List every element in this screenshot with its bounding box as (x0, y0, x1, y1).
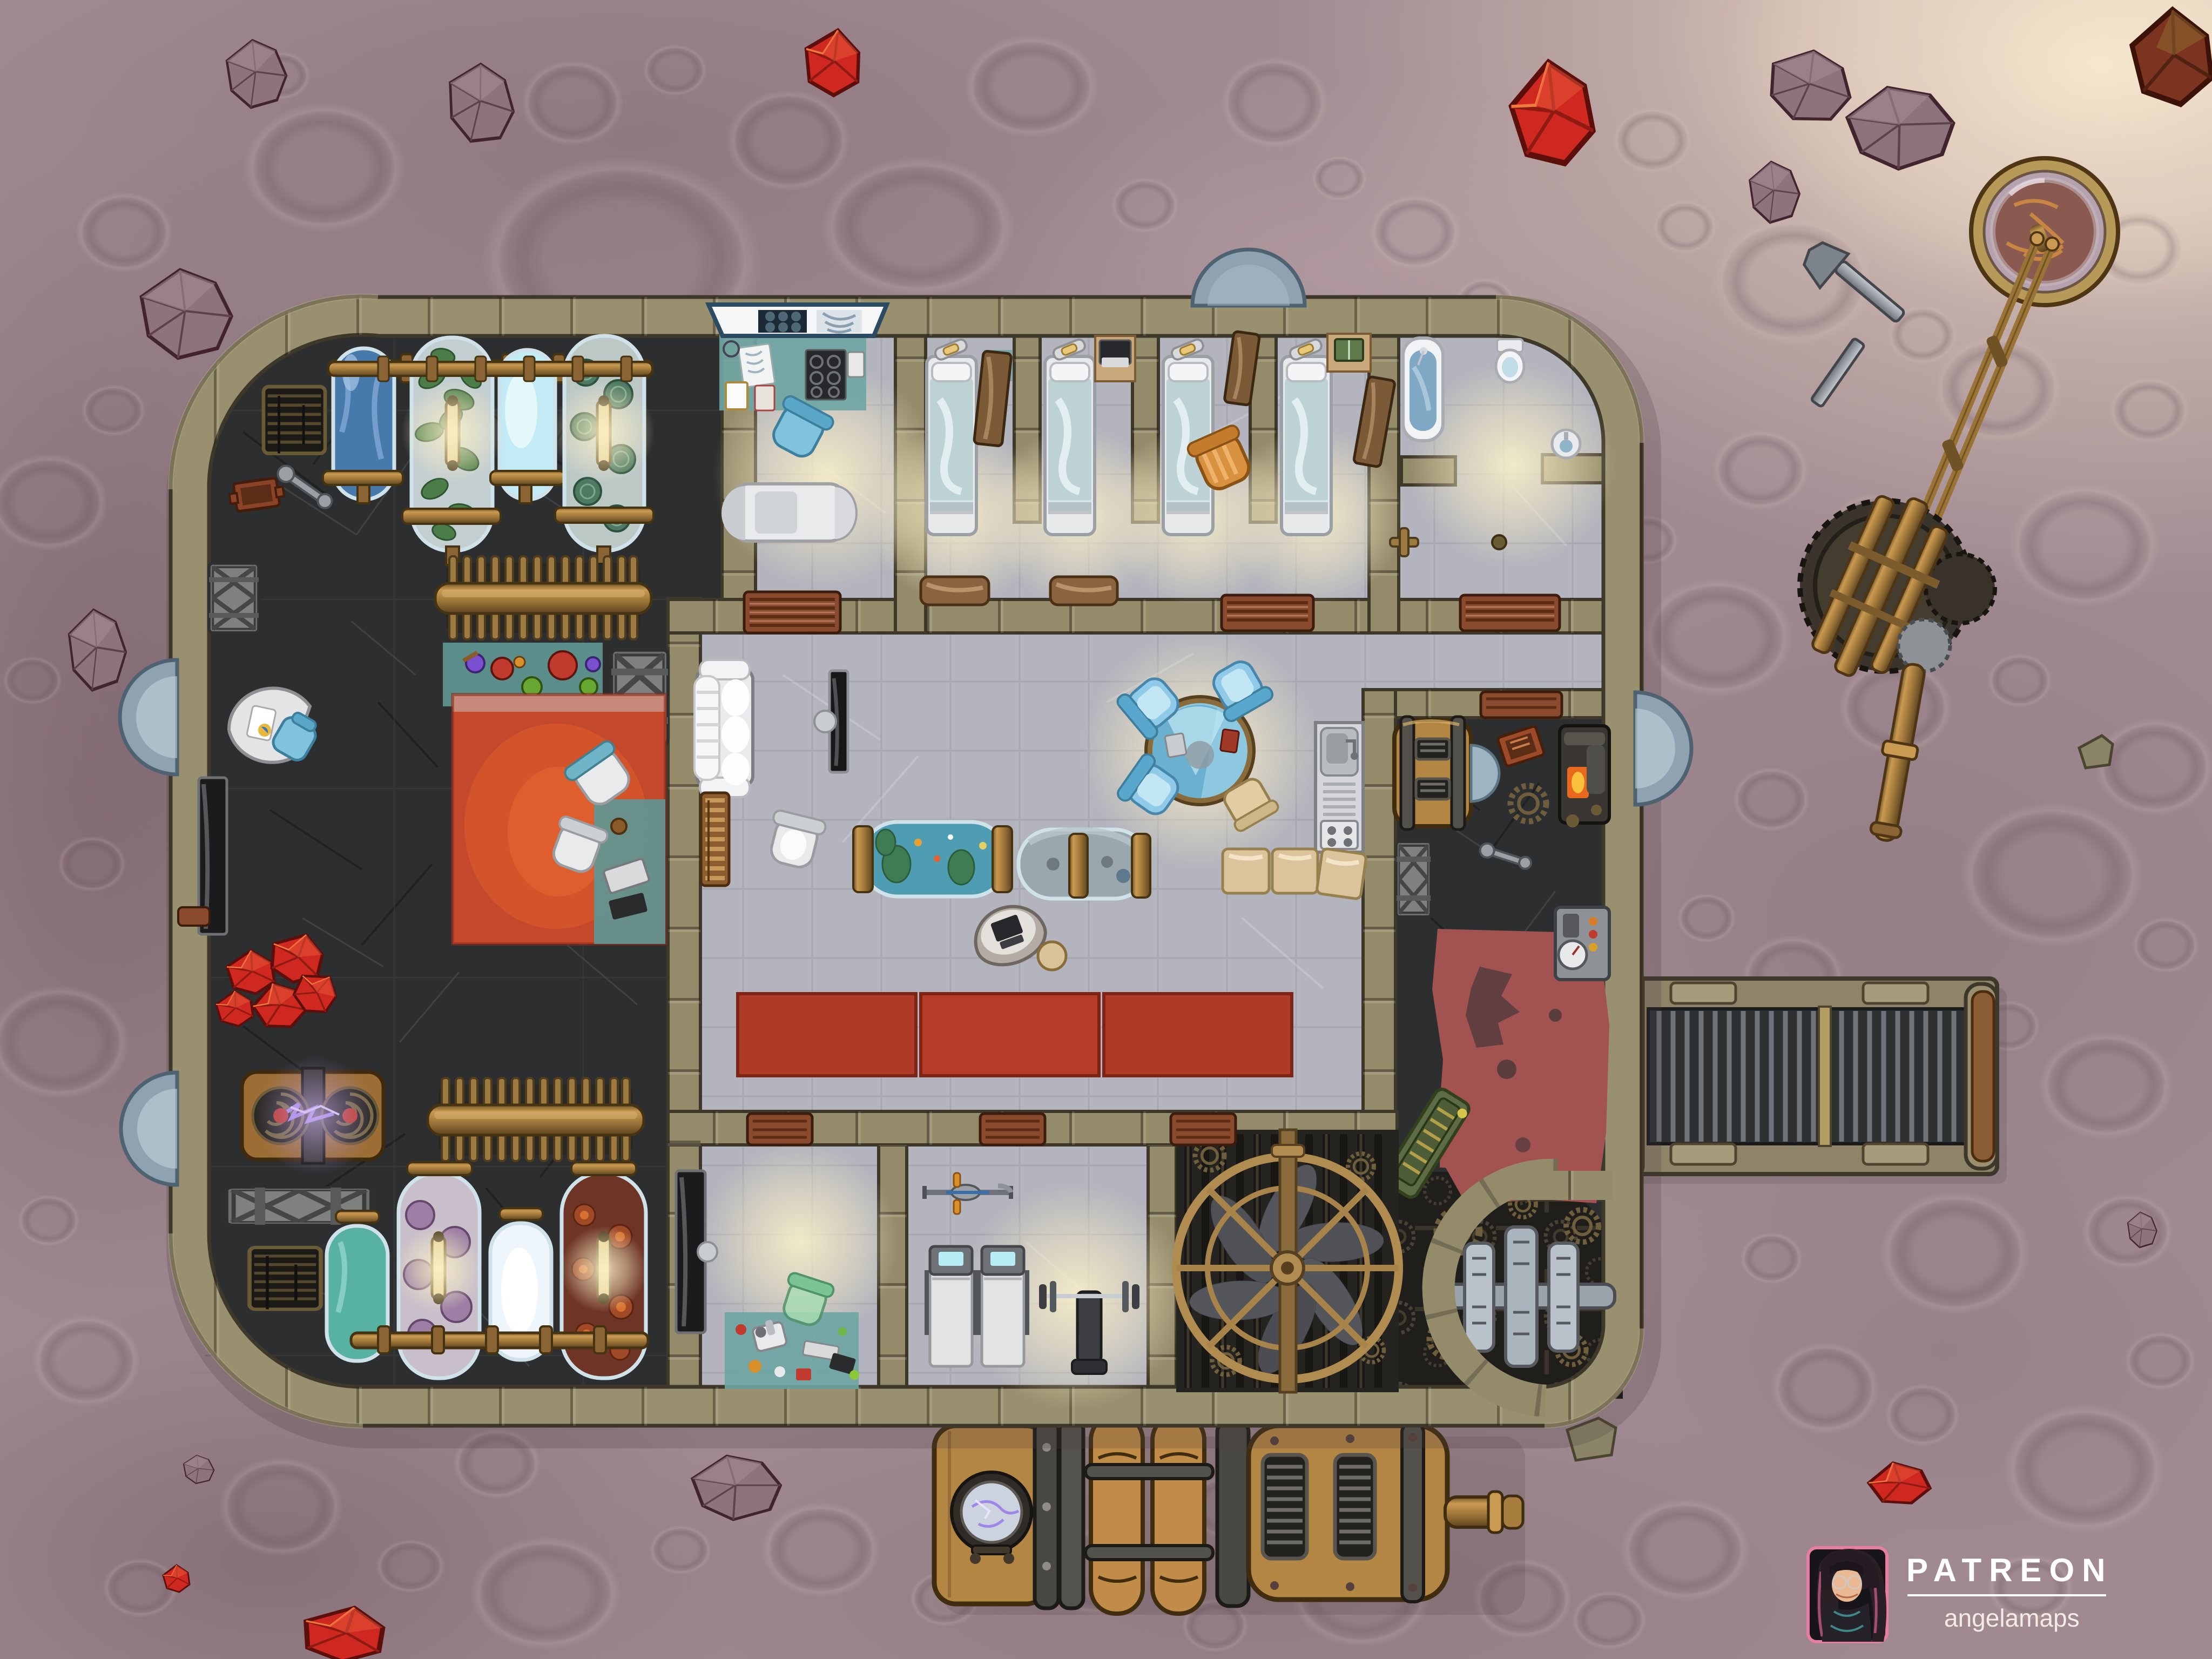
svg-text:PATREON: PATREON (1906, 1552, 2113, 1588)
svg-text:angelamaps: angelamaps (1944, 1604, 2080, 1632)
